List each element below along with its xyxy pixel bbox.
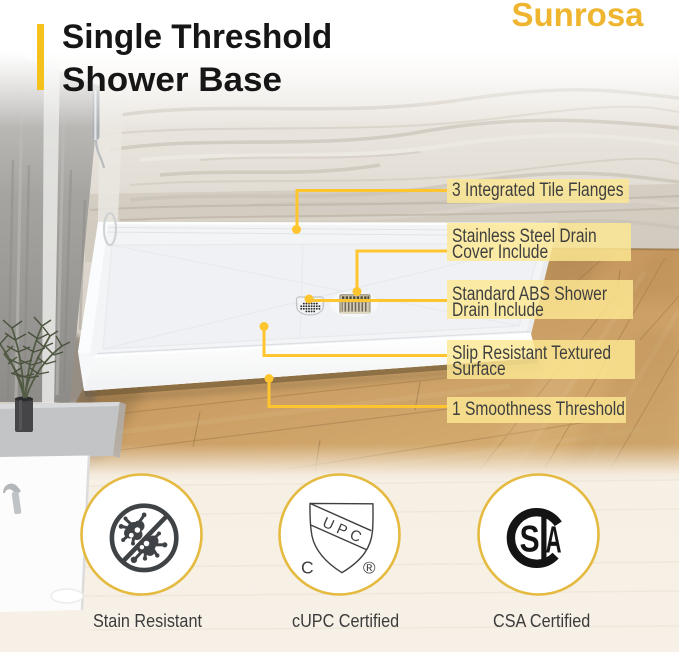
svg-text:®: ®	[363, 559, 376, 578]
svg-text:S: S	[520, 518, 540, 560]
svg-text:C: C	[301, 558, 314, 578]
svg-text:A: A	[546, 520, 562, 562]
